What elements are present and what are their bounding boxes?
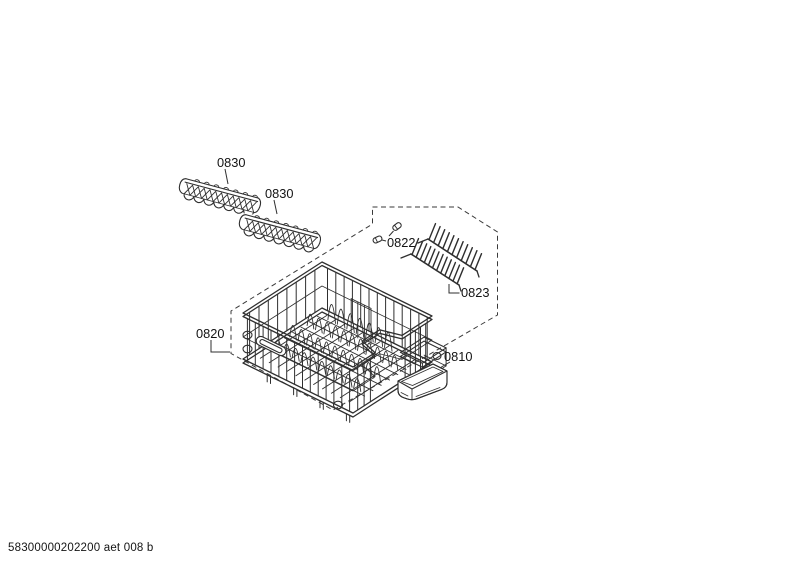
leader-spike-rack <box>449 284 460 293</box>
leader-rack-right <box>274 200 277 214</box>
leader-clips <box>382 240 386 241</box>
leader-rack-left <box>225 169 228 184</box>
part-label-0822: 0822 <box>387 235 415 250</box>
rack-0830-left <box>177 176 263 219</box>
part-label-0823: 0823 <box>461 285 489 300</box>
exploded-parts-diagram: 0830 0830 0822 0823 0820 0810 <box>0 0 800 566</box>
spike-racks-0823 <box>401 224 482 291</box>
part-label-0810: 0810 <box>444 349 472 364</box>
parts-diagram-page: 0830 0830 0822 0823 0820 0810 5830000020… <box>0 0 800 566</box>
document-code: 58300000202200 aet 008 b <box>8 542 154 554</box>
part-label-0830-right: 0830 <box>265 186 293 201</box>
part-label-0830-left: 0830 <box>217 155 245 170</box>
part-label-0820: 0820 <box>196 326 224 341</box>
rack-0830-right <box>237 212 323 255</box>
leader-basket <box>211 340 230 352</box>
